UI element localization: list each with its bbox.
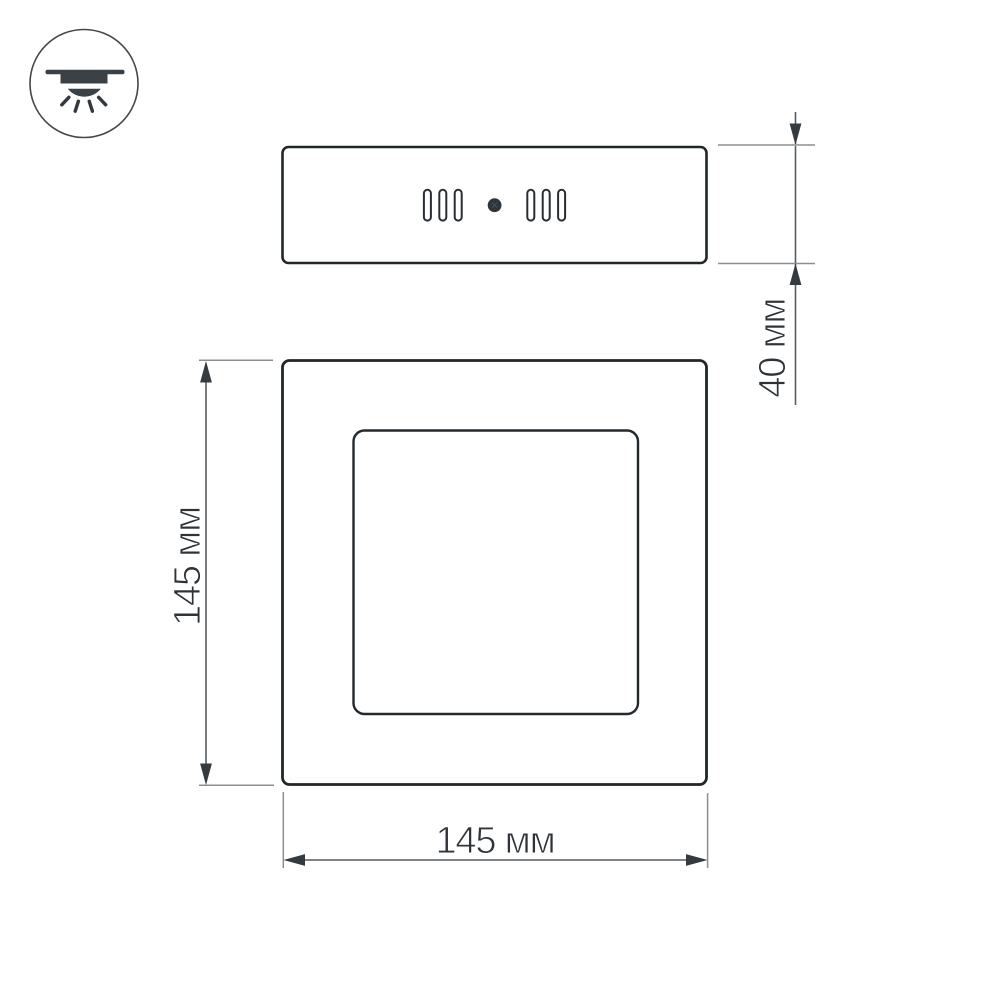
svg-text:145 мм: 145 мм xyxy=(435,820,554,862)
svg-text:40 мм: 40 мм xyxy=(752,299,794,398)
svg-text:145 мм: 145 мм xyxy=(167,507,209,626)
